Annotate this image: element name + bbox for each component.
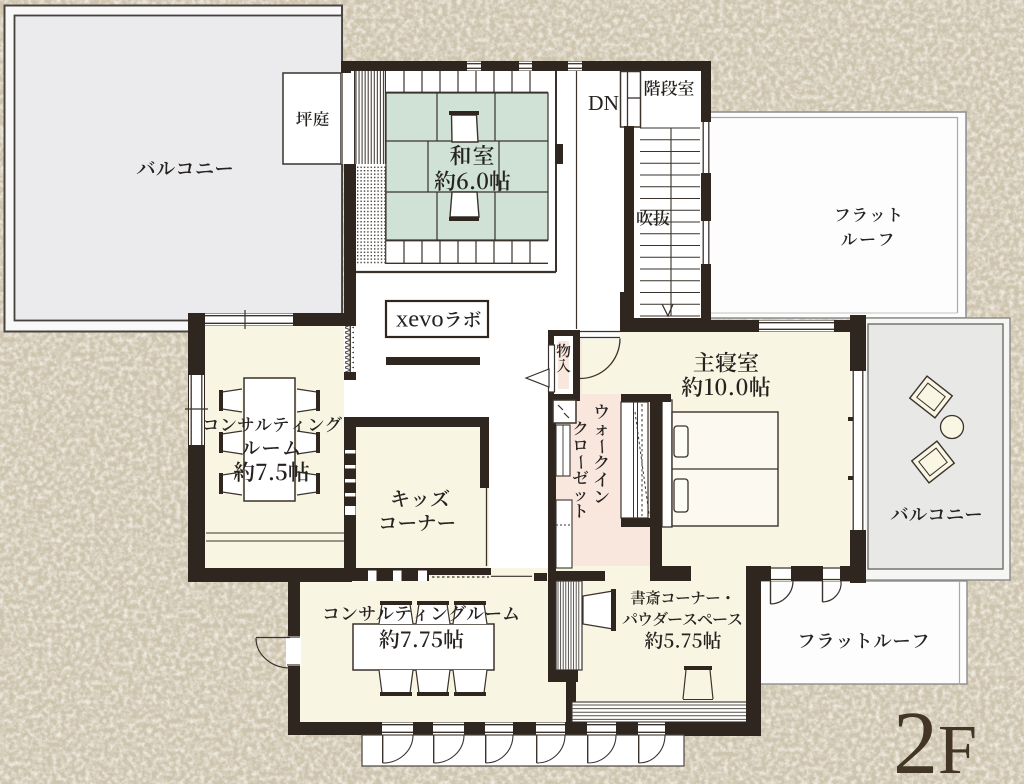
svg-text:DN: DN: [588, 91, 620, 115]
svg-text:xevo: xevo: [396, 306, 444, 333]
